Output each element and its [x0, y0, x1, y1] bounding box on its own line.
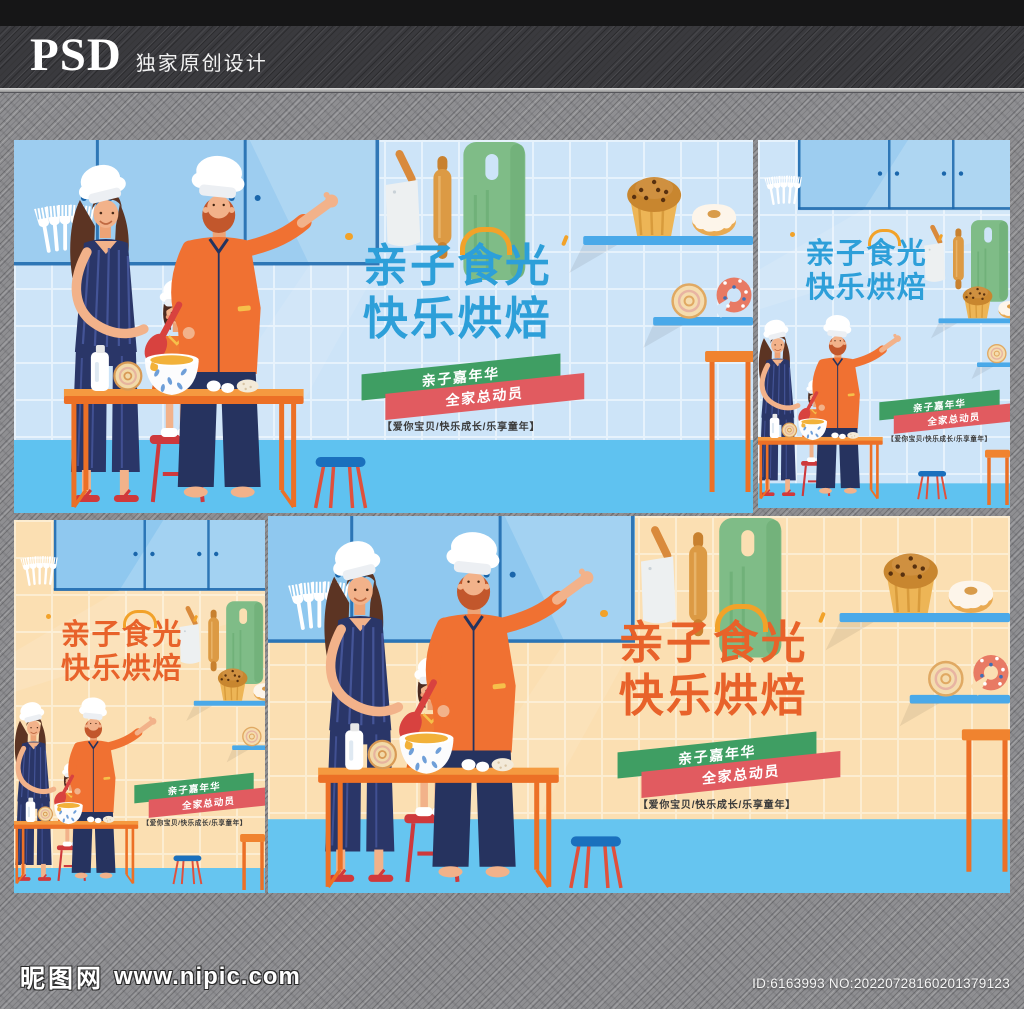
header-subtitle: 独家原创设计 — [136, 47, 268, 76]
pastry-shelves — [826, 553, 1010, 726]
title-accent-dot — [790, 232, 795, 237]
title-line-1: 亲子食光 — [598, 618, 828, 668]
top-dark-band — [0, 0, 1024, 26]
wall-forks-icon — [764, 176, 801, 206]
header-divider — [0, 88, 1024, 93]
title-line-1: 亲子食光 — [44, 619, 200, 651]
poster-tagline: 【爱你宝贝/快乐成长/乐享童年】 — [361, 418, 561, 433]
site-url: www.nipic.com — [114, 963, 301, 991]
psd-logo: PSD — [30, 28, 122, 82]
title-accent-dot — [46, 614, 51, 619]
title-line-2: 快乐烘焙 — [44, 653, 200, 685]
kitchen-scene — [758, 140, 1010, 508]
title-line-2: 快乐烘焙 — [598, 671, 828, 721]
kitchen-floor — [14, 868, 265, 893]
site-watermark: 昵图网 www.nipic.com — [20, 959, 301, 995]
wall-forks-icon — [20, 556, 57, 587]
poster-orange-portrait: 亲子食光 快乐烘焙 亲子嘉年华 全家总动员 【爱你宝贝/快乐成长/乐享童年】 — [14, 520, 265, 893]
poster-orange-landscape: 亲子食光 快乐烘焙 亲子嘉年华 全家总动员 【爱你宝贝/快乐成长/乐享童年】 — [268, 516, 1010, 893]
kitchen-cabinet — [798, 140, 1010, 210]
pastry-shelves — [569, 177, 753, 348]
title-line-2: 快乐烘焙 — [788, 272, 944, 304]
poster-ribbons: 亲子嘉年华 全家总动员 【爱你宝贝/快乐成长/乐享童年】 — [879, 396, 1000, 444]
kitchen-scene — [14, 520, 265, 893]
poster-tagline: 【爱你宝贝/快乐成长/乐享童年】 — [617, 796, 817, 811]
poster-title: 亲子食光 快乐烘焙 — [788, 238, 944, 305]
poster-title: 亲子食光 快乐烘焙 — [598, 618, 828, 721]
poster-title: 亲子食光 快乐烘焙 — [343, 241, 572, 344]
title-accent-dot — [345, 233, 353, 241]
header-band: PSD 独家原创设计 — [0, 26, 1024, 88]
title-line-1: 亲子食光 — [788, 238, 944, 270]
image-id-text: ID:6163993 NO:20220728160201379123 — [752, 976, 1010, 991]
title-line-2: 快乐烘焙 — [343, 294, 572, 344]
poster-blue-landscape: 亲子食光 快乐烘焙 亲子嘉年华 全家总动员 【爱你宝贝/快乐成长/乐享童年】 — [14, 140, 753, 513]
poster-ribbons: 亲子嘉年华 全家总动员 【爱你宝贝/快乐成长/乐享童年】 — [134, 779, 254, 827]
poster-tagline: 【爱你宝贝/快乐成长/乐享童年】 — [879, 433, 1000, 443]
title-line-1: 亲子食光 — [343, 241, 572, 291]
title-accent-arc — [123, 610, 157, 628]
nipic-preview-page: { "header": { "logo": "PSD", "subtitle":… — [0, 0, 1024, 1009]
poster-ribbons: 亲子嘉年华 全家总动员 【爱你宝贝/快乐成长/乐享童年】 — [361, 364, 561, 433]
kitchen-floor — [758, 483, 1010, 508]
site-logo: 昵图网 — [20, 959, 104, 995]
kitchen-cabinet — [54, 520, 265, 591]
poster-tagline: 【爱你宝贝/快乐成长/乐享童年】 — [134, 817, 254, 827]
poster-ribbons: 亲子嘉年华 全家总动员 【爱你宝贝/快乐成长/乐享童年】 — [617, 742, 817, 811]
poster-blue-portrait: 亲子食光 快乐烘焙 亲子嘉年华 全家总动员 【爱你宝贝/快乐成长/乐享童年】 — [758, 140, 1010, 508]
poster-title: 亲子食光 快乐烘焙 — [44, 619, 200, 686]
